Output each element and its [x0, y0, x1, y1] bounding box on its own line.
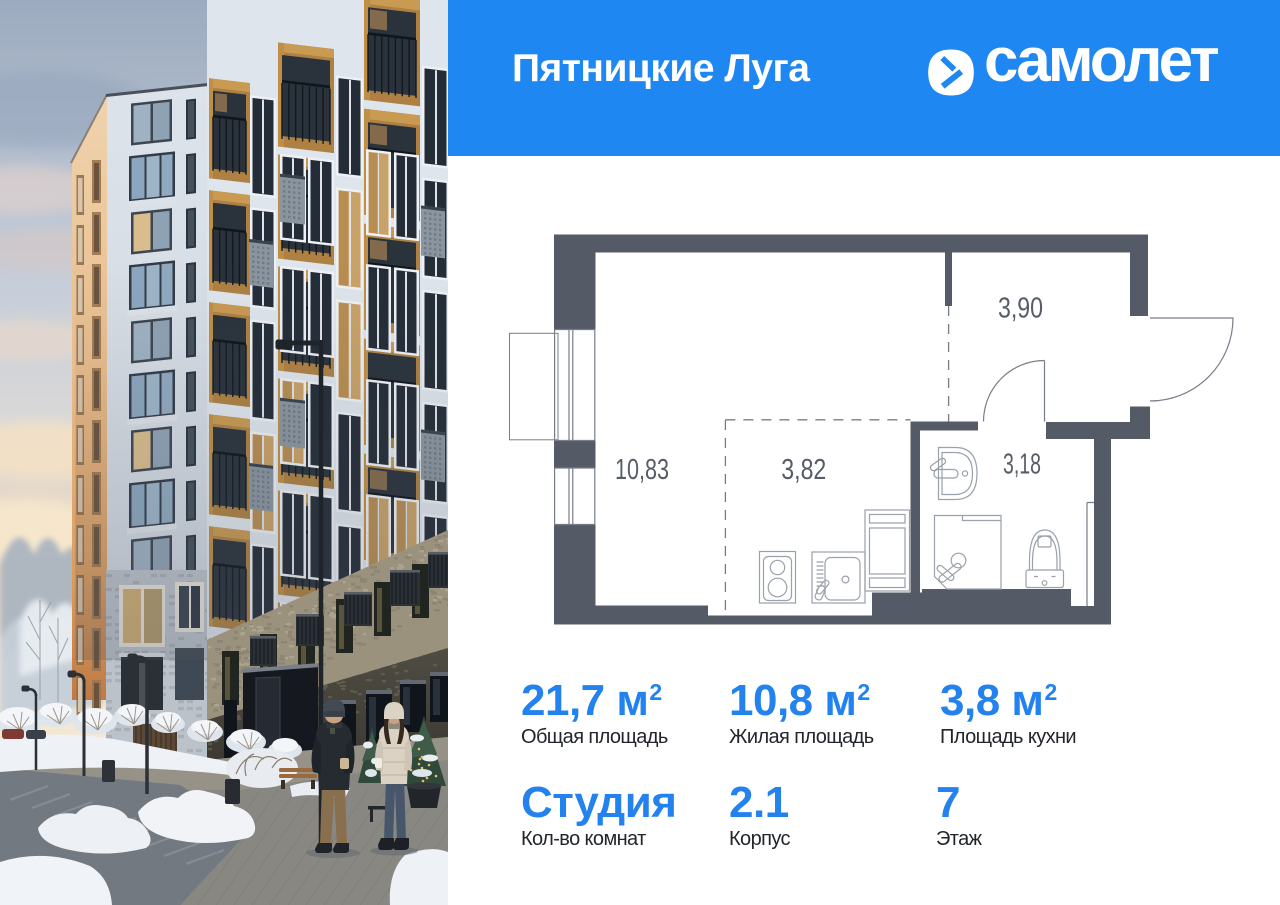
svg-text:10,83: 10,83 [615, 454, 669, 486]
svg-text:3,18: 3,18 [1003, 449, 1041, 481]
svg-text:3,82: 3,82 [781, 454, 826, 486]
svg-text:3,90: 3,90 [998, 293, 1043, 325]
